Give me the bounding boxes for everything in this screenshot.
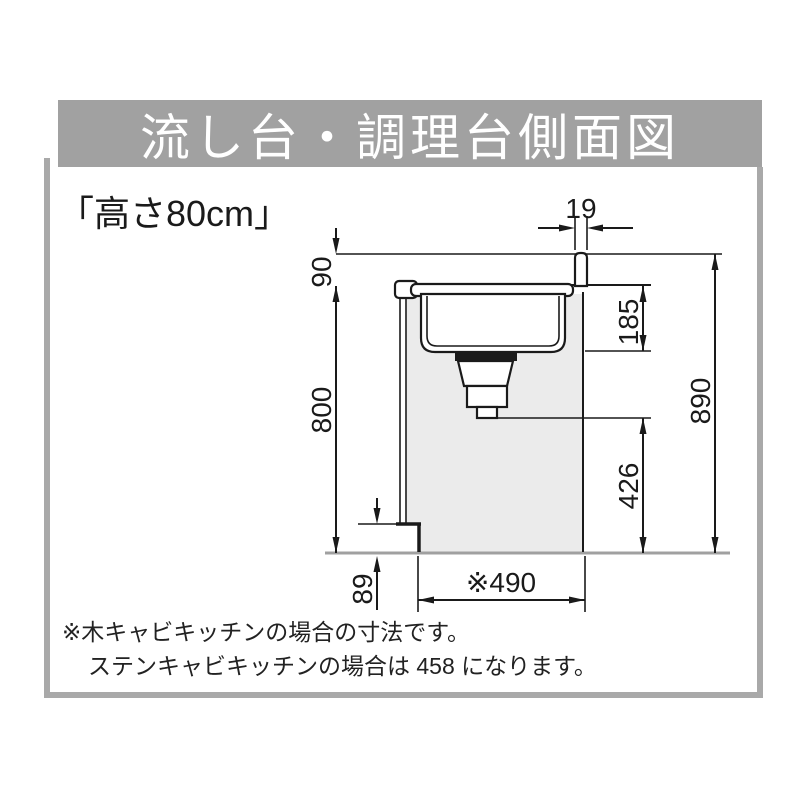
cabinet-front-panel (400, 298, 406, 523)
page: 流し台・調理台側面図 「高さ80cm」 (0, 0, 800, 800)
dim-lip-width: 19 (538, 193, 633, 232)
dim-label-89: 89 (347, 573, 378, 604)
backsplash-lip (575, 253, 587, 286)
dim-label-90: 90 (306, 256, 337, 287)
dim-drain-clearance: 426 (613, 418, 647, 553)
dim-total-height: 890 (685, 254, 719, 553)
dim-label-890: 890 (685, 378, 716, 425)
toe-kick (396, 523, 421, 552)
dim-label-19: 19 (565, 193, 596, 224)
footnote-line-2: ステンキャビキッチンの場合は 458 になります。 (88, 652, 597, 680)
dim-counter-height: 800 (306, 286, 340, 553)
footnote-line-1: ※木キャビキッチンの場合の寸法です。 (62, 618, 470, 646)
dim-cabinet-depth: ※490 (418, 567, 585, 604)
dim-label-426: 426 (613, 463, 644, 510)
drain-flange (455, 353, 517, 361)
side-view-diagram: 19 90 800 185 426 (0, 0, 800, 800)
sink-bowl-outer (421, 294, 565, 352)
dim-label-185: 185 (613, 299, 644, 346)
sink-bowl (421, 294, 565, 352)
drain-trap (467, 386, 507, 407)
dim-label-490: ※490 (466, 567, 536, 598)
drain-outlet (477, 407, 497, 418)
dim-sink-depth: 185 (613, 286, 647, 351)
drain-cup (458, 361, 513, 386)
dim-backsplash-height: 90 (306, 228, 340, 288)
cabinet-fill-toekick (421, 525, 583, 553)
dim-label-800: 800 (306, 387, 337, 434)
